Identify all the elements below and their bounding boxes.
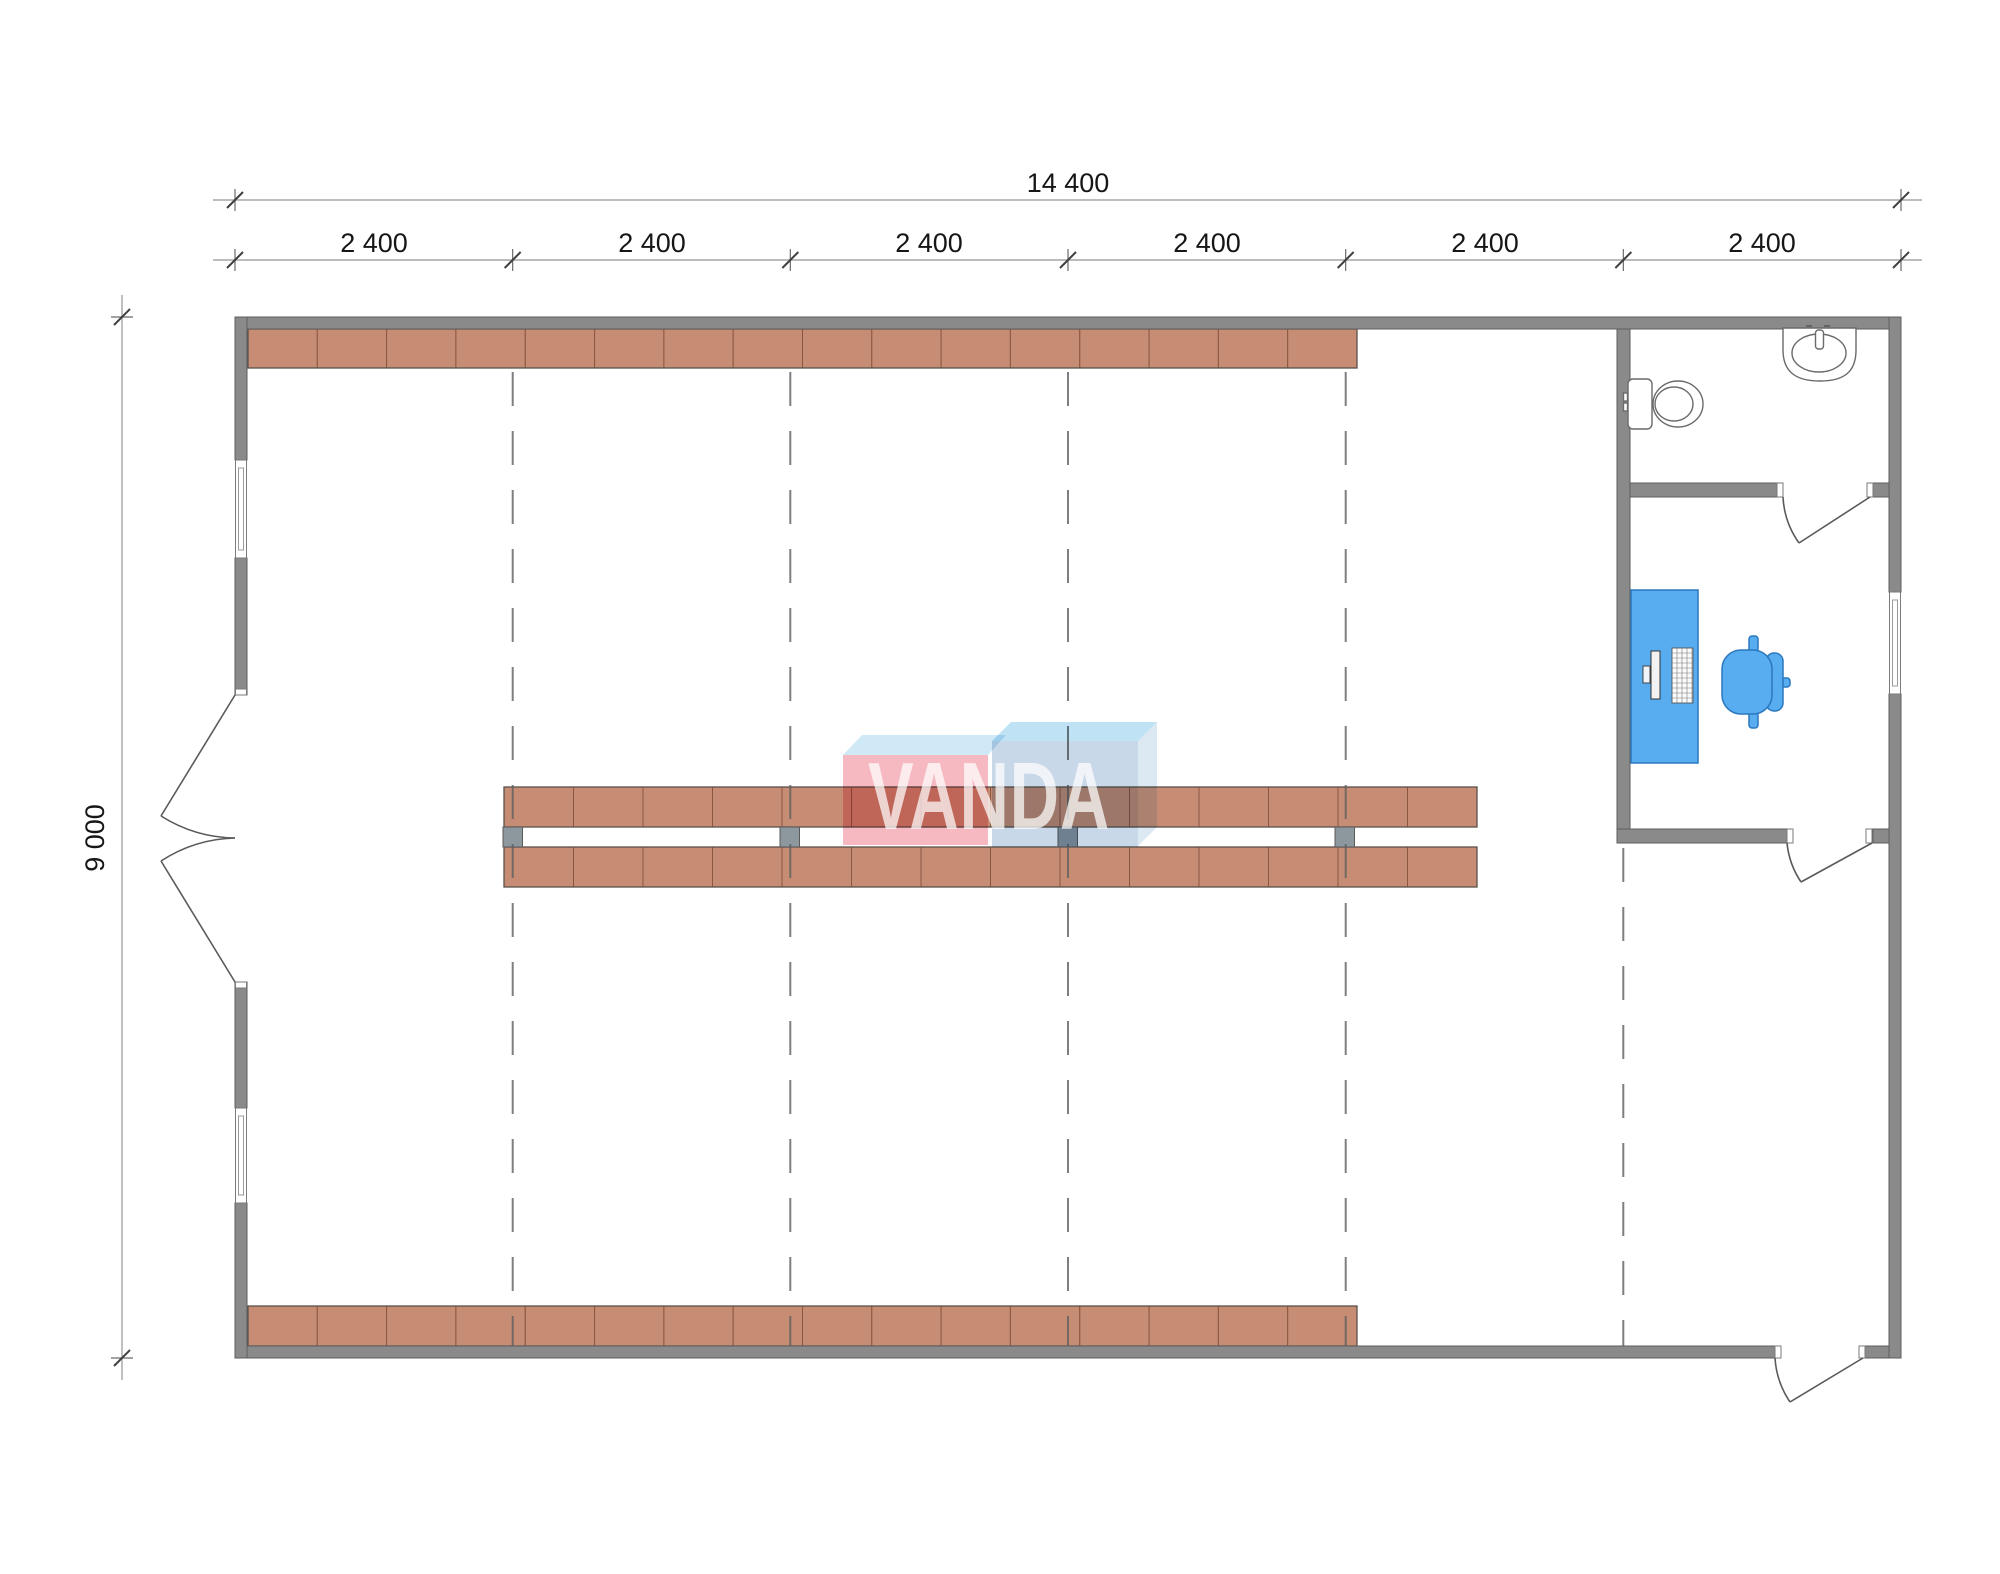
- toilet-icon: [1624, 379, 1704, 429]
- dim-bay-label-5: 2 400: [1451, 228, 1519, 258]
- shelf-segment: [1080, 1306, 1149, 1346]
- doors-layer: [161, 483, 1873, 1402]
- shelf-segment: [852, 847, 922, 887]
- dim-bay-label-6: 2 400: [1728, 228, 1796, 258]
- shelf-segment: [803, 329, 872, 368]
- wall-bottom-left-segment: [235, 1346, 1775, 1358]
- monitor-stand-icon: [1643, 666, 1650, 683]
- shelf-segment: [595, 1306, 664, 1346]
- wall-left-segment-2: [235, 558, 247, 695]
- shelf-segment: [317, 329, 386, 368]
- shelf-segment: [504, 787, 574, 827]
- shelf-segment: [733, 329, 802, 368]
- dim-total-width-label: 14 400: [1027, 168, 1110, 198]
- dim-bay-label-1: 2 400: [340, 228, 408, 258]
- floor-plan-canvas: 14 400 2 400 2 400 2 400 2 400 2 400 2 4…: [0, 0, 2000, 1574]
- shelf-segment: [803, 1306, 872, 1346]
- shelf-segment: [643, 847, 713, 887]
- shelf-segment: [574, 847, 644, 887]
- shelf-segment: [1010, 329, 1079, 368]
- wall-office-bottom-stub: [1873, 829, 1889, 843]
- middle-shelf-lower-row: [504, 847, 1477, 887]
- shelf-segment: [1149, 1306, 1218, 1346]
- logo-blue-box-top: [992, 722, 1157, 741]
- shelf-segment: [782, 787, 852, 827]
- shelf-segment: [941, 329, 1010, 368]
- shelf-segment: [456, 1306, 525, 1346]
- shelf-segment: [1060, 847, 1130, 887]
- shelf-segment: [387, 329, 456, 368]
- shelf-segment: [1130, 847, 1200, 887]
- desk: [1631, 590, 1698, 763]
- shelf-segment: [574, 787, 644, 827]
- window-right-office: [1890, 592, 1901, 694]
- dim-bay-label-3: 2 400: [895, 228, 963, 258]
- wall-bathroom-bottom: [1630, 483, 1777, 497]
- shelf-segment: [1010, 1306, 1079, 1346]
- shelf-segment: [1218, 1306, 1287, 1346]
- shelf-segment: [1199, 787, 1269, 827]
- shelf-segment: [1408, 787, 1478, 827]
- shelf-segment: [525, 329, 594, 368]
- door-bathroom: [1777, 483, 1873, 543]
- shelf-segment: [713, 787, 783, 827]
- shelf-segment: [387, 1306, 456, 1346]
- shelf-segment: [713, 847, 783, 887]
- shelf-segment: [733, 1306, 802, 1346]
- shelf-segment: [1338, 847, 1408, 887]
- top-wall-shelf-row: [248, 329, 1357, 368]
- dim-bay-label-2: 2 400: [618, 228, 686, 258]
- wall-right-segment-1: [1889, 317, 1901, 592]
- shelf-segment: [1218, 329, 1287, 368]
- fixtures-layer: [1624, 326, 1857, 763]
- logo-wordmark: VANDA: [868, 743, 1110, 850]
- wall-right-segment-2: [1889, 694, 1901, 1358]
- sink-icon: [1783, 326, 1856, 381]
- shelf-segment: [456, 329, 525, 368]
- window-left-upper: [236, 460, 247, 558]
- shelf-segment: [1408, 847, 1478, 887]
- shelf-segment: [1149, 329, 1218, 368]
- shelf-segment: [1338, 787, 1408, 827]
- watermark-logo: VANDA: [843, 722, 1157, 850]
- door-exterior-bottom: [1775, 1346, 1865, 1402]
- shelf-segment: [643, 787, 713, 827]
- shelf-segment: [595, 329, 664, 368]
- wall-top: [235, 317, 1901, 329]
- wall-bathroom-bottom-stub: [1873, 483, 1889, 497]
- shelf-segment: [525, 1306, 594, 1346]
- floor-plan-svg: 14 400 2 400 2 400 2 400 2 400 2 400 2 4…: [0, 0, 2000, 1574]
- window-left-lower: [236, 1108, 247, 1203]
- wall-office-bottom: [1617, 829, 1787, 843]
- shelf-segment: [872, 329, 941, 368]
- shelf-segment: [248, 329, 317, 368]
- shelf-segment: [317, 1306, 386, 1346]
- shelf-segment: [504, 847, 574, 887]
- office-chair: [1722, 636, 1790, 728]
- shelf-segment: [941, 1306, 1010, 1346]
- shelf-segment: [664, 1306, 733, 1346]
- wall-left-segment-4: [235, 1203, 247, 1358]
- shelf-segment: [921, 847, 991, 887]
- shelf-segment: [1269, 847, 1339, 887]
- shelf-segment: [1288, 329, 1357, 368]
- monitor-icon: [1651, 651, 1660, 699]
- keyboard-icon: [1672, 648, 1693, 703]
- wall-left-segment-1: [235, 317, 247, 460]
- shelf-segment: [1199, 847, 1269, 887]
- shelf-segment: [1080, 329, 1149, 368]
- bottom-wall-shelf-row: [248, 1306, 1357, 1346]
- shelf-segment: [248, 1306, 317, 1346]
- dim-height-label: 9 000: [80, 804, 110, 872]
- shelf-segment: [664, 329, 733, 368]
- wall-left-segment-3: [235, 982, 247, 1108]
- dim-bay-label-4: 2 400: [1173, 228, 1241, 258]
- door-double-entrance-left: [161, 689, 247, 988]
- shelf-segment: [991, 847, 1061, 887]
- shelf-segment: [1269, 787, 1339, 827]
- shelf-segment: [872, 1306, 941, 1346]
- door-office: [1787, 829, 1872, 882]
- logo-blue-box-side: [1138, 722, 1157, 846]
- shelf-segment: [782, 847, 852, 887]
